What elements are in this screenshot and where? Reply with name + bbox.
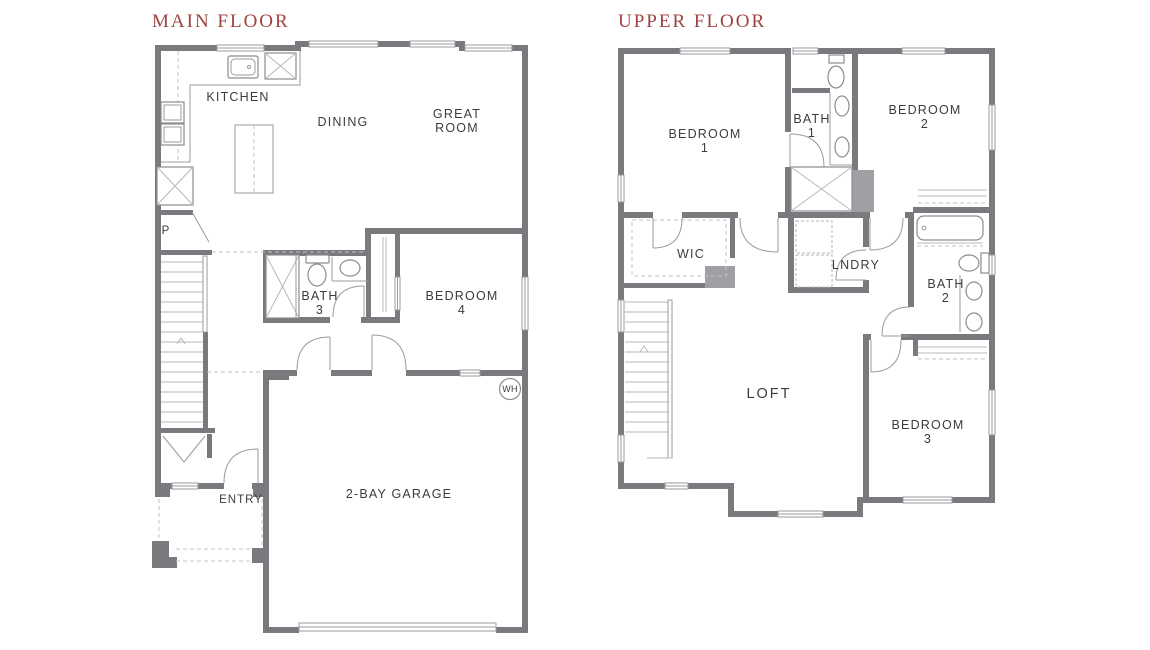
garage-door <box>299 623 496 631</box>
bath2-toilet-icon <box>959 253 989 273</box>
main-interior-walls <box>155 210 528 458</box>
room-label-bath-2-line1: BATH <box>927 277 964 291</box>
room-label-bedroom-3: BEDROOM 3 <box>892 418 965 446</box>
room-label-bedroom-4-line2: 4 <box>426 303 499 317</box>
room-label-bath-1-line2: 1 <box>793 126 830 140</box>
room-label-great-room-line2: ROOM <box>433 121 481 135</box>
room-label-bedroom-4: BEDROOM 4 <box>426 289 499 317</box>
room-label-kitchen: KITCHEN <box>206 90 269 104</box>
laundry-washer-dryer-icon <box>796 221 832 287</box>
bath3-shower-icon <box>266 255 299 318</box>
bath1-tub-icon <box>791 167 852 211</box>
bedroom2-closet <box>918 190 987 203</box>
bedroom3-closet <box>918 347 987 359</box>
room-label-bedroom-2-line1: BEDROOM <box>889 103 962 117</box>
kitchen-sink-icon <box>228 56 258 78</box>
room-label-bedroom-2-line2: 2 <box>889 117 962 131</box>
entry-closet-bifold-door <box>163 436 205 462</box>
room-label-bath-2: BATH 2 <box>927 277 964 305</box>
room-label-water-heater: WH <box>502 382 518 396</box>
floorplan-canvas <box>0 0 1150 650</box>
room-label-loft: LOFT <box>746 387 791 401</box>
room-label-bedroom-1-line1: BEDROOM <box>669 127 742 141</box>
room-label-bath-3-line1: BATH <box>301 289 338 303</box>
bath3-toilet-icon <box>306 255 329 286</box>
room-label-bedroom-1-line2: 1 <box>669 141 742 155</box>
main-stairs <box>161 256 207 422</box>
pantry-door <box>192 212 209 242</box>
room-label-bath-1: BATH 1 <box>793 112 830 140</box>
floorplan-page: MAIN FLOOR UPPER FLOOR KITCHEN DINING GR… <box>0 0 1150 650</box>
room-label-great-room: GREAT ROOM <box>433 107 481 135</box>
room-label-bath-3-line2: 3 <box>301 303 338 317</box>
bath1-vanity-sinks-icon <box>830 93 852 165</box>
room-label-bedroom-4-line1: BEDROOM <box>426 289 499 303</box>
room-label-bath-3: BATH 3 <box>301 289 338 317</box>
room-label-entry: ENTRY <box>219 493 263 507</box>
room-label-bath-2-line2: 2 <box>927 291 964 305</box>
upper-floor-title: UPPER FLOOR <box>618 11 766 33</box>
room-label-bedroom-3-line2: 3 <box>892 432 965 446</box>
room-label-dining: DINING <box>318 115 369 129</box>
bath3-vanity-sink-icon <box>332 257 368 281</box>
bath2-tub-icon <box>917 216 983 246</box>
room-label-bedroom-3-line1: BEDROOM <box>892 418 965 432</box>
room-label-laundry: LNDRY <box>832 258 880 272</box>
room-label-great-room-line1: GREAT <box>433 107 481 121</box>
room-label-pantry: P <box>162 224 171 238</box>
main-floor-title: MAIN FLOOR <box>152 11 290 33</box>
room-label-garage: 2-BAY GARAGE <box>346 487 452 501</box>
room-label-bedroom-1: BEDROOM 1 <box>669 127 742 155</box>
room-label-bedroom-2: BEDROOM 2 <box>889 103 962 131</box>
wall-oven-icon <box>161 102 184 145</box>
upper-stairs <box>625 300 672 458</box>
refrigerator-icon <box>157 167 193 205</box>
bath1-toilet-icon <box>828 55 844 88</box>
room-label-bath-1-line1: BATH <box>793 112 830 126</box>
room-label-wic: WIC <box>677 247 705 261</box>
range-icon <box>265 53 296 79</box>
kitchen-island <box>235 125 273 193</box>
